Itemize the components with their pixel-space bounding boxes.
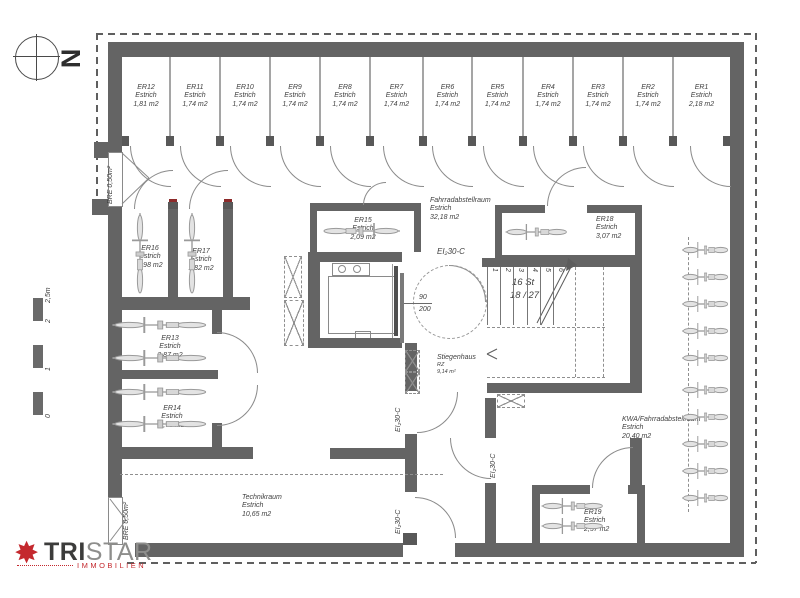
bicycle-icon (681, 462, 729, 480)
stair-step-number: 6 (557, 268, 564, 272)
bicycle-icon (540, 497, 604, 515)
bicycle-icon (110, 316, 208, 334)
stair-tread-line (540, 267, 541, 325)
bicycle-icon (183, 211, 201, 295)
bicycle-icon (681, 435, 729, 453)
stair-step-number: 5 (544, 268, 551, 272)
room-label-er9: ER9Estrich1,74 m2 (269, 84, 321, 109)
bicycle-icon (681, 268, 729, 286)
scale-bar-block (33, 345, 43, 368)
bicycle-icon (681, 408, 729, 426)
bicycle-icon (322, 222, 402, 240)
bicycle-icon (681, 489, 729, 507)
door-post (419, 136, 427, 146)
bicycle-icon (681, 295, 729, 313)
room-label-er2: ER2Estrich1,74 m2 (622, 84, 674, 109)
fire-rating-label: EI₂30-C (395, 408, 402, 432)
fire-rating-label: EI₂30-C (490, 454, 497, 478)
scale-bar-label: 1 (45, 367, 52, 371)
scale-bar-label: 0 (45, 414, 52, 418)
room-label-stiegenhaus: Stiegenhaus RZ 9,14 m² (437, 354, 476, 376)
room-label-er12: ER12Estrich1,81 m2 (120, 84, 172, 109)
room-label-er18: ER18Estrich3,07 m2 (596, 216, 621, 241)
stair-step-number: 2 (504, 268, 511, 272)
stair-tread-line (553, 267, 554, 325)
opening-label: BRE 0,50m² (107, 166, 114, 204)
door-post (519, 136, 527, 146)
door-post (723, 136, 730, 146)
stair-tread-line (513, 267, 514, 325)
door-post (316, 136, 324, 146)
logo-dotted-line (17, 565, 73, 566)
bicycle-icon (681, 322, 729, 340)
scale-bar-block (33, 392, 43, 415)
room-label-er11: ER11Estrich1,74 m2 (169, 84, 221, 109)
stair-riser-label: 18 / 27 (510, 290, 539, 301)
scale-bar-label: 2,5m (45, 287, 52, 303)
stair-step-number: 4 (531, 268, 538, 272)
bicycle-icon (110, 349, 208, 367)
logo-subtitle: IMMOBILIEN (77, 561, 146, 570)
opening-label: BRE 0,50m² (123, 502, 130, 540)
fire-rating-label: EI₂30-C (395, 510, 402, 534)
fire-rating-label: EI₂30-C (437, 247, 465, 257)
scale-bar-label: 2 (45, 319, 52, 323)
stair-tread-line (500, 267, 501, 325)
room-label-er1: ER1Estrich2,18 m2 (676, 84, 728, 109)
bicycle-icon (540, 517, 604, 535)
room-label-er6: ER6Estrich1,74 m2 (422, 84, 474, 109)
bicycle-icon (681, 241, 729, 259)
stair-step-number: 1 (491, 268, 498, 272)
bicycle-icon (681, 381, 729, 399)
door-post (468, 136, 476, 146)
room-label-er3: ER3Estrich1,74 m2 (572, 84, 624, 109)
room-label-technikraum: TechnikraumEstrich10,65 m2 (242, 494, 282, 519)
room-label-er5: ER5Estrich1,74 m2 (472, 84, 524, 109)
stair-count-label: 16 St (512, 277, 534, 288)
door-post (366, 136, 374, 146)
room-label-er4: ER4Estrich1,74 m2 (522, 84, 574, 109)
bicycle-icon (681, 349, 729, 367)
bicycle-icon (110, 383, 208, 401)
door-post (669, 136, 677, 146)
floor-plan: N (0, 0, 800, 598)
door-post (619, 136, 627, 146)
stair-step-number: 3 (517, 268, 524, 272)
stair-tread-line (527, 267, 528, 325)
room-label-fahrradabstellraum: FahrradabstellraumEstrich32,18 m2 (430, 197, 491, 222)
bicycle-icon (131, 211, 149, 295)
bicycle-icon (504, 223, 568, 241)
scale-bar-block (33, 298, 43, 321)
stair-direction-arrow (566, 258, 577, 271)
door-post (122, 136, 129, 146)
bicycle-icon (110, 415, 208, 433)
room-label-er7: ER7Estrich1,74 m2 (371, 84, 423, 109)
stair-tread-line (487, 267, 488, 325)
room-label-er8: ER8Estrich1,74 m2 (319, 84, 371, 109)
door-post (266, 136, 274, 146)
door-post (216, 136, 224, 146)
door-dimension: 90 200 (404, 293, 434, 314)
room-label-er10: ER10Estrich1,74 m2 (219, 84, 271, 109)
door-post (166, 136, 174, 146)
door-post (569, 136, 577, 146)
